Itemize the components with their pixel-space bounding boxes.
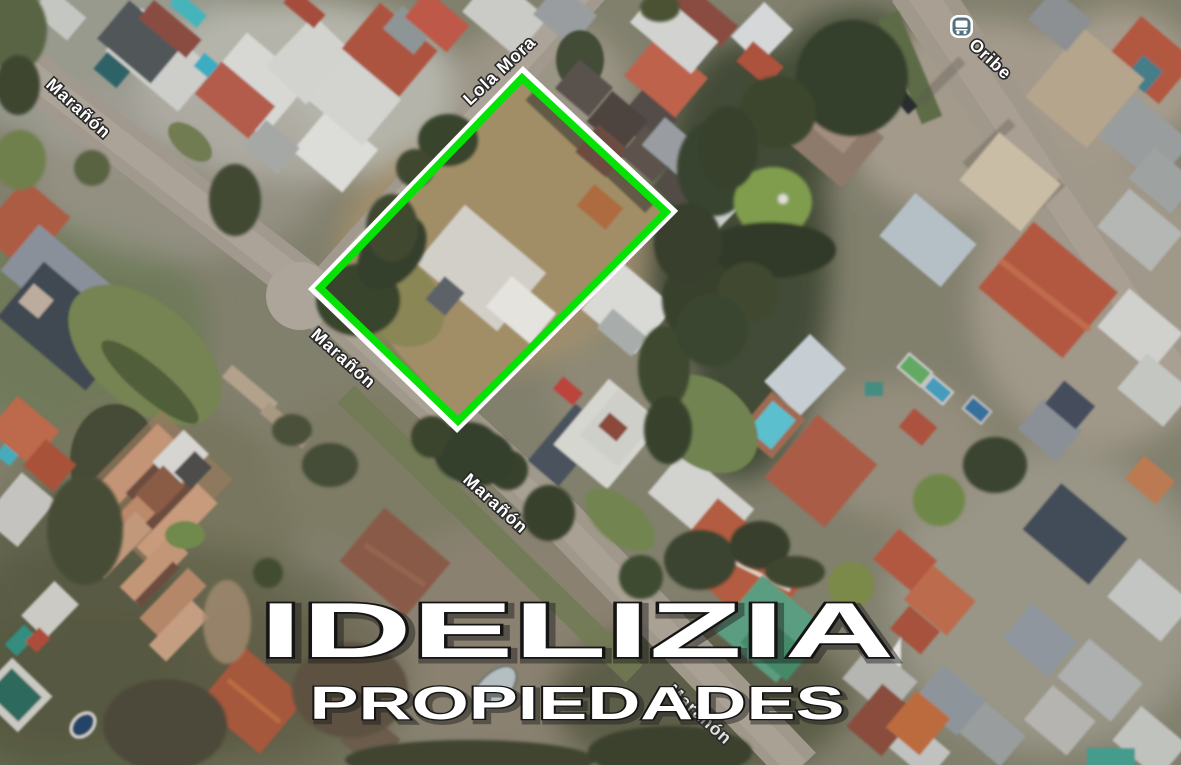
svg-text:IDELIZIA: IDELIZIA [260,586,895,674]
svg-text:PROPIEDADES: PROPIEDADES [310,677,845,729]
